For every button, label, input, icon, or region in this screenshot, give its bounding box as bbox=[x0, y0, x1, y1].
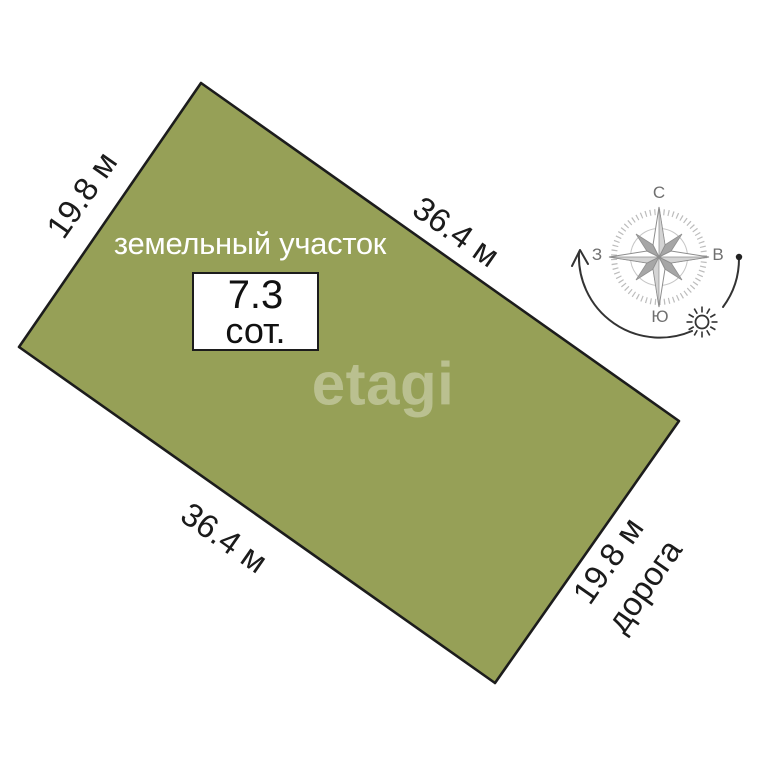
sun-icon bbox=[687, 307, 718, 338]
land-plot-scheme: etagi 19.8 м 36.4 м 36.4 м 19.8 м дорога… bbox=[0, 0, 768, 768]
compass-north-label: С bbox=[653, 183, 665, 203]
compass-rose-icon bbox=[609, 207, 709, 307]
area-value: 7.3 bbox=[228, 276, 284, 314]
compass-west-label: З bbox=[592, 245, 602, 265]
area-unit: сот. bbox=[225, 314, 285, 347]
sunrise-dot bbox=[736, 254, 742, 260]
compass-cardinal-points bbox=[609, 207, 709, 307]
sun-path-arc-west bbox=[579, 253, 692, 338]
compass-east-label: В bbox=[712, 245, 723, 265]
sun-path-arc-east bbox=[723, 258, 739, 307]
area-box: 7.3 сот. bbox=[192, 272, 319, 351]
plot-title: земельный участок bbox=[114, 226, 386, 262]
watermark: etagi bbox=[312, 350, 455, 419]
compass-south-label: Ю bbox=[651, 307, 668, 327]
